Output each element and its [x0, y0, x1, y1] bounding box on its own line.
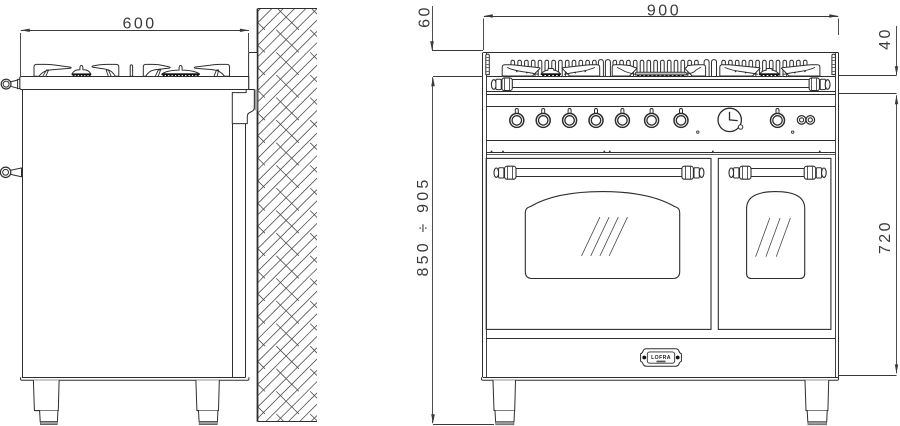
- svg-text:60: 60: [416, 5, 433, 28]
- svg-text:40: 40: [877, 27, 894, 50]
- svg-text:600: 600: [122, 16, 156, 33]
- svg-text:900: 900: [647, 2, 681, 19]
- svg-text:LOFRA: LOFRA: [651, 355, 671, 361]
- svg-text:720: 720: [877, 220, 894, 254]
- svg-text:850 ÷ 905: 850 ÷ 905: [415, 177, 432, 277]
